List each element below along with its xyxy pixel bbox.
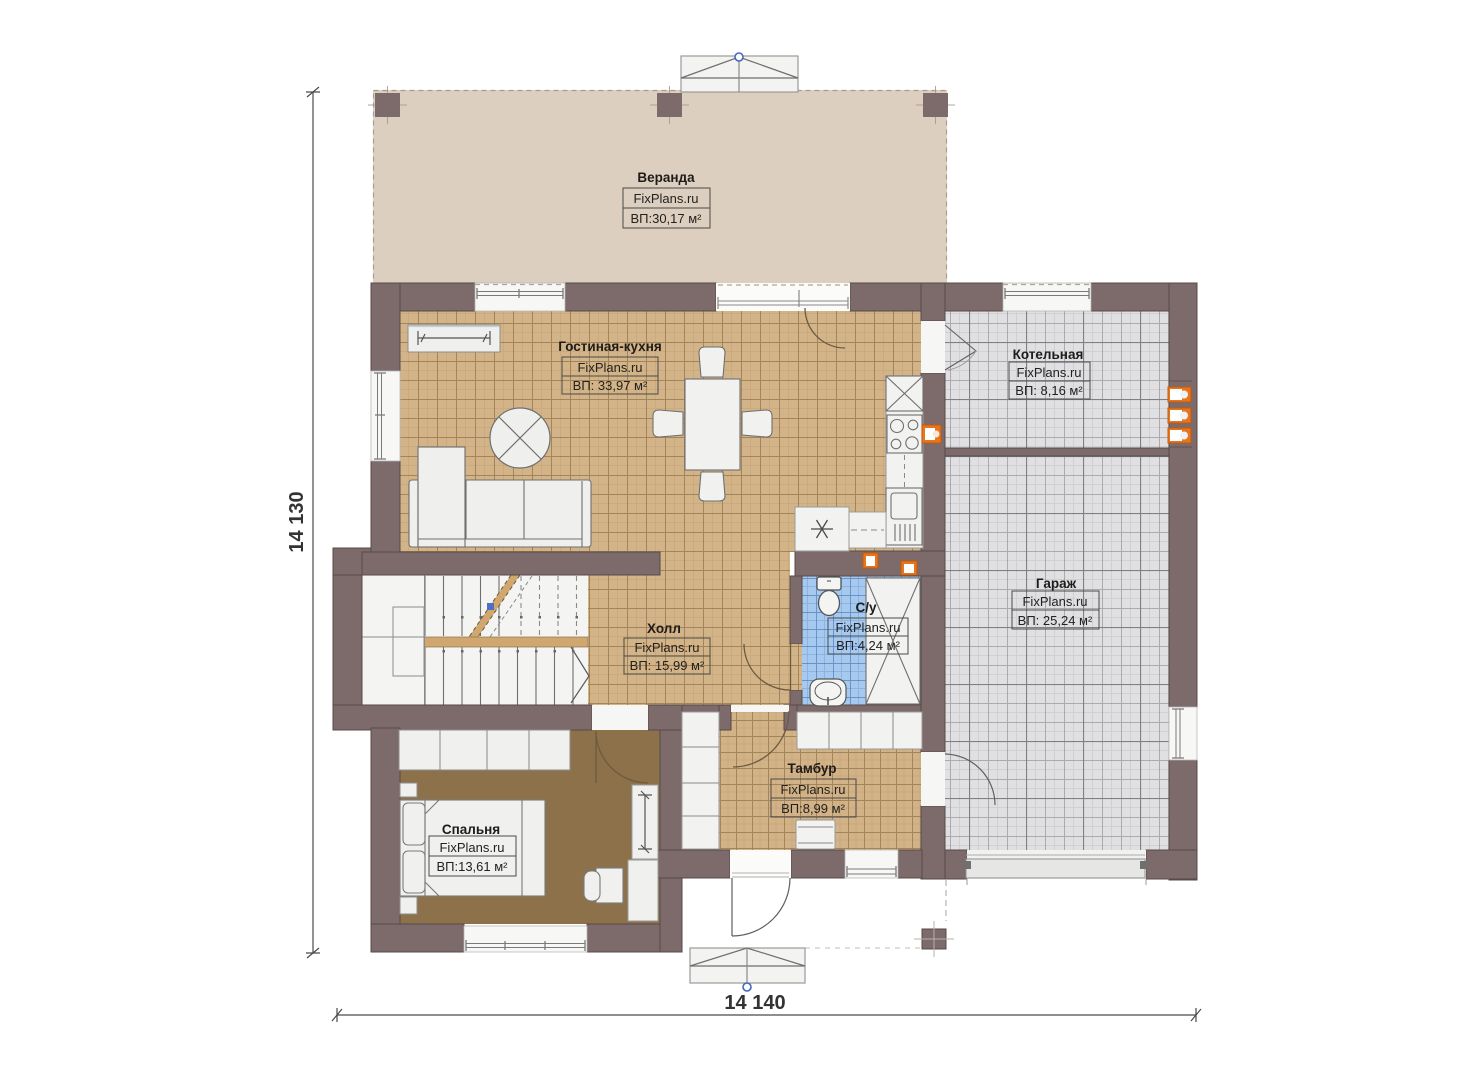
svg-text:14 140: 14 140 bbox=[724, 992, 785, 1014]
svg-text:FixPlans.ru: FixPlans.ru bbox=[439, 840, 504, 855]
svg-text:Гараж: Гараж bbox=[1036, 576, 1077, 591]
svg-text:Холл: Холл bbox=[647, 621, 681, 636]
svg-text:ВП:4,24 м²: ВП:4,24 м² bbox=[836, 638, 900, 653]
svg-text:ВП:30,17 м²: ВП:30,17 м² bbox=[630, 211, 702, 226]
svg-text:Тамбур: Тамбур bbox=[788, 761, 837, 776]
svg-text:FixPlans.ru: FixPlans.ru bbox=[577, 360, 642, 375]
svg-text:ВП: 25,24 м²: ВП: 25,24 м² bbox=[1018, 613, 1093, 628]
svg-text:Веранда: Веранда bbox=[637, 170, 695, 185]
svg-text:ВП:13,61 м²: ВП:13,61 м² bbox=[436, 859, 508, 874]
svg-text:FixPlans.ru: FixPlans.ru bbox=[633, 191, 698, 206]
svg-text:Котельная: Котельная bbox=[1013, 347, 1084, 362]
svg-text:FixPlans.ru: FixPlans.ru bbox=[1022, 594, 1087, 609]
svg-text:ВП:8,99 м²: ВП:8,99 м² bbox=[781, 801, 845, 816]
svg-text:С/у: С/у bbox=[855, 600, 877, 615]
svg-text:FixPlans.ru: FixPlans.ru bbox=[780, 782, 845, 797]
svg-text:ВП: 8,16 м²: ВП: 8,16 м² bbox=[1015, 383, 1083, 398]
svg-text:14 130: 14 130 bbox=[286, 491, 308, 552]
svg-text:Гостиная-кухня: Гостиная-кухня bbox=[558, 339, 661, 354]
svg-text:FixPlans.ru: FixPlans.ru bbox=[835, 620, 900, 635]
svg-text:ВП: 15,99 м²: ВП: 15,99 м² bbox=[630, 658, 705, 673]
svg-text:ВП: 33,97 м²: ВП: 33,97 м² bbox=[573, 378, 648, 393]
svg-text:FixPlans.ru: FixPlans.ru bbox=[634, 640, 699, 655]
svg-text:Спальня: Спальня bbox=[442, 822, 500, 837]
svg-text:FixPlans.ru: FixPlans.ru bbox=[1016, 365, 1081, 380]
